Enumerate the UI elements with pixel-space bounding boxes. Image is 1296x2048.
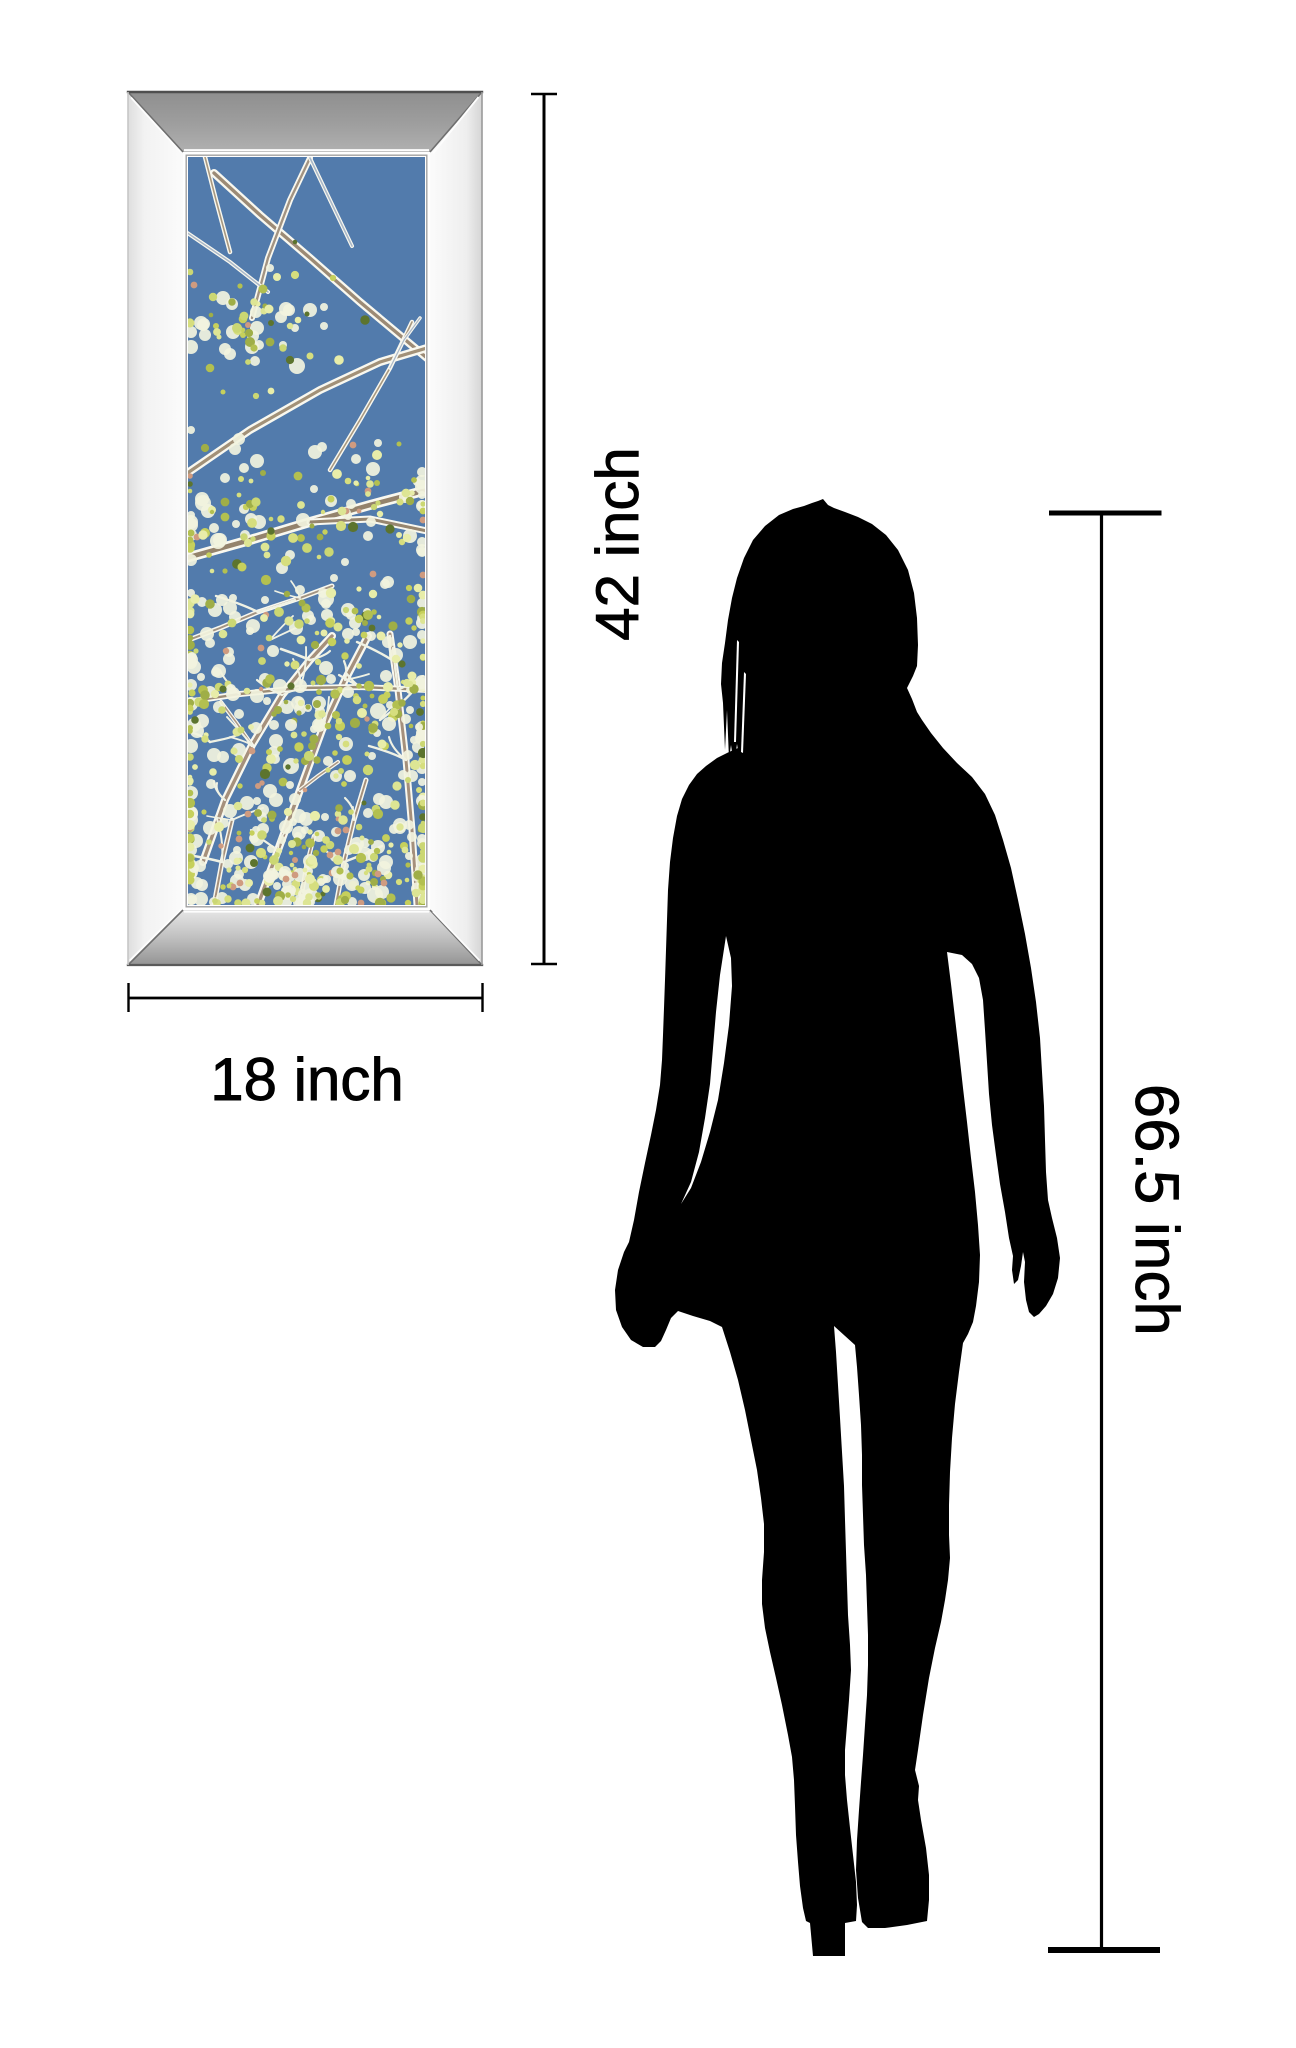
svg-text:42 inch: 42 inch	[584, 447, 651, 640]
svg-text:66.5 inch: 66.5 inch	[1123, 1084, 1191, 1336]
svg-text:18 inch: 18 inch	[210, 1046, 403, 1113]
